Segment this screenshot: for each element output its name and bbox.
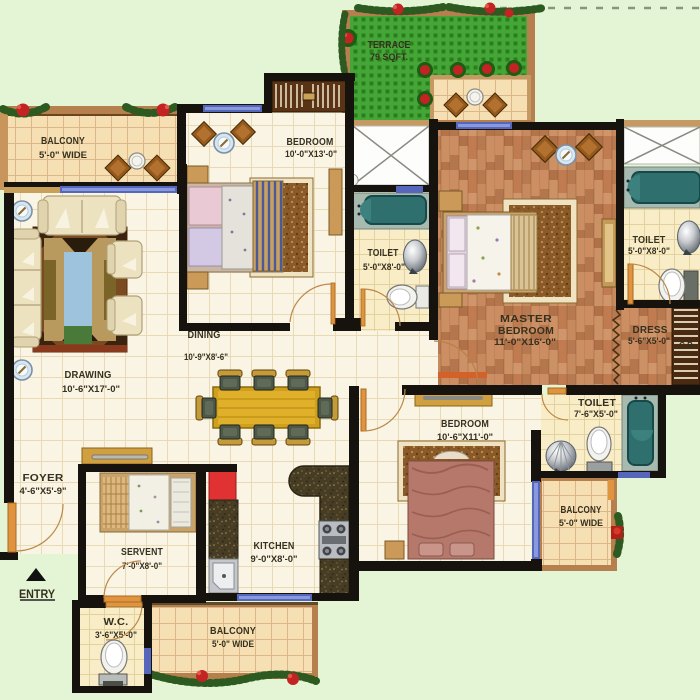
svg-text:10'-9"X8'-6": 10'-9"X8'-6" bbox=[184, 352, 228, 363]
svg-text:5'-0" WIDE: 5'-0" WIDE bbox=[39, 150, 87, 161]
svg-text:TOILET: TOILET bbox=[368, 247, 399, 259]
svg-text:BEDROOM: BEDROOM bbox=[287, 136, 334, 148]
svg-text:4'-6"X5'-9": 4'-6"X5'-9" bbox=[20, 486, 67, 497]
svg-text:MASTER: MASTER bbox=[500, 313, 552, 325]
svg-text:BALCONY: BALCONY bbox=[210, 625, 256, 637]
svg-text:5'-0"X8'-0": 5'-0"X8'-0" bbox=[363, 262, 405, 273]
svg-text:9'-0"X8'-0": 9'-0"X8'-0" bbox=[251, 554, 298, 565]
svg-text:11'-0"X16'-0": 11'-0"X16'-0" bbox=[494, 337, 556, 348]
svg-text:3'-6"X5'-0": 3'-6"X5'-0" bbox=[95, 630, 137, 641]
svg-text:TERRACE: TERRACE bbox=[368, 39, 411, 51]
svg-text:DRAWING: DRAWING bbox=[65, 369, 112, 381]
svg-text:BEDROOM: BEDROOM bbox=[441, 418, 489, 430]
svg-text:10'-0"X13'-0": 10'-0"X13'-0" bbox=[285, 149, 337, 160]
svg-text:ENTRY: ENTRY bbox=[19, 587, 55, 601]
svg-text:BEDROOM: BEDROOM bbox=[498, 325, 554, 337]
svg-text:5'-0" WIDE: 5'-0" WIDE bbox=[212, 639, 254, 650]
svg-text:7'-6"X5'-0": 7'-6"X5'-0" bbox=[574, 409, 618, 420]
svg-text:10'-6"X17'-0": 10'-6"X17'-0" bbox=[62, 384, 120, 395]
svg-text:5'-0" WIDE: 5'-0" WIDE bbox=[559, 518, 603, 529]
svg-text:BALCONY: BALCONY bbox=[561, 504, 602, 516]
svg-text:5'-0"X8'-0": 5'-0"X8'-0" bbox=[628, 246, 670, 257]
svg-text:TOILET: TOILET bbox=[578, 397, 616, 409]
svg-text:C B: C B bbox=[679, 341, 693, 350]
svg-text:FOYER: FOYER bbox=[23, 472, 64, 484]
svg-text:79 SQFT.: 79 SQFT. bbox=[370, 52, 408, 63]
svg-text:5'-6"X5'-0": 5'-6"X5'-0" bbox=[628, 336, 670, 347]
svg-text:SERVENT: SERVENT bbox=[121, 546, 163, 558]
svg-text:BALCONY: BALCONY bbox=[41, 135, 85, 147]
svg-text:DRESS: DRESS bbox=[633, 324, 668, 336]
svg-text:W.C.: W.C. bbox=[104, 616, 129, 628]
svg-text:KITCHEN: KITCHEN bbox=[254, 540, 295, 552]
svg-text:TOILET: TOILET bbox=[633, 234, 666, 246]
